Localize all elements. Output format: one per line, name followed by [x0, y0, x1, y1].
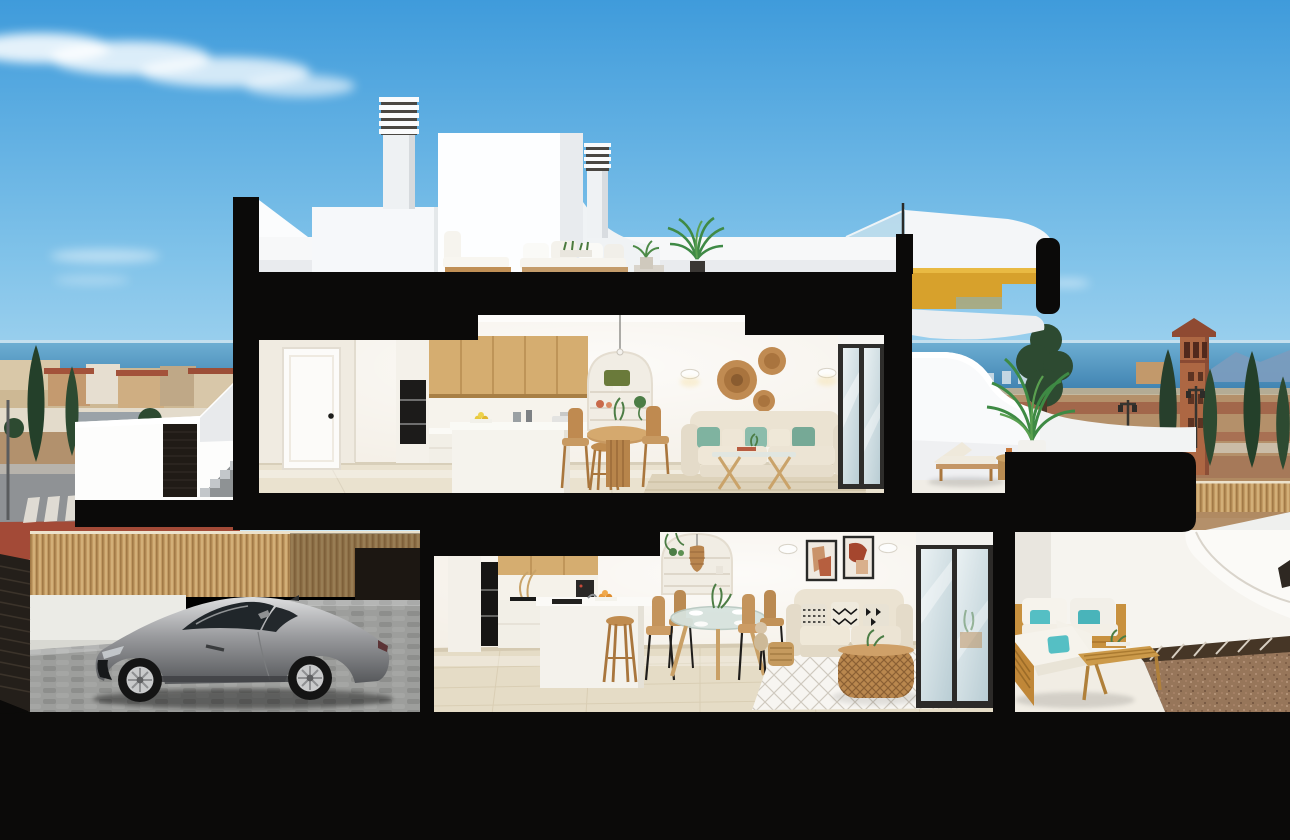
ground-sliding-door [916, 530, 993, 708]
outdoor-sofa [520, 241, 628, 273]
teal-pillow [1047, 635, 1070, 654]
blind-box [916, 530, 993, 545]
neighbour-stair-structure [905, 210, 1060, 339]
render-canvas [0, 0, 1290, 840]
ground-terrace [1006, 512, 1290, 714]
table-pedestal [606, 440, 630, 487]
island-sink [552, 599, 582, 604]
ground-right-cut-bar [993, 528, 1015, 714]
teal-pillow [792, 427, 815, 448]
door-handle [328, 413, 334, 419]
appliance-stack [481, 562, 498, 646]
rear-wheel [288, 656, 332, 700]
glass-top [712, 452, 796, 457]
upper-wood-cabinets [429, 336, 588, 398]
upper-wood-cabinets [498, 553, 598, 575]
chaise-cushion [443, 257, 509, 268]
roof-volume-low [312, 207, 440, 273]
front-wheel [118, 658, 162, 702]
planter-box [560, 250, 592, 257]
wall-sconce [779, 544, 797, 553]
wall-sconce [879, 543, 897, 552]
foundation-slab-cut [0, 712, 1290, 840]
pedestrian-gate [163, 424, 197, 497]
chimney [379, 97, 419, 209]
patterned-pillow [863, 604, 889, 628]
left-cut-bar [233, 197, 259, 527]
niche-vase [716, 566, 723, 574]
teal-pillow [697, 427, 720, 448]
plant-pot [640, 257, 653, 269]
niche-plant [634, 396, 646, 408]
table-books [737, 447, 756, 451]
tall-cabinet [448, 556, 481, 652]
niche-vase [596, 400, 604, 408]
chimney [584, 143, 611, 238]
reflected-console [960, 632, 982, 648]
niche-lamp [604, 370, 630, 386]
ground-left-cut-bar [420, 548, 434, 714]
pendant-lamp [617, 349, 623, 355]
ground-niche [662, 533, 732, 594]
cream-pillow [722, 429, 743, 448]
built-in-oven [400, 380, 426, 444]
seat-cushion [800, 626, 850, 646]
patterned-pillow [801, 604, 827, 628]
interior-door [283, 348, 340, 469]
upper-floor [259, 313, 884, 506]
rooftop-cut-column [896, 234, 913, 274]
cream-pillow [769, 429, 790, 448]
upper-right-cut-bar [884, 272, 912, 530]
bench-tray [1106, 642, 1130, 646]
gravel-bed [1144, 652, 1290, 714]
stair-cut-bar [1036, 238, 1060, 314]
upper-sliding-door [838, 331, 884, 489]
patterned-pillow [831, 602, 859, 628]
lounger-cushion [940, 456, 996, 465]
upper-sofa [681, 411, 852, 477]
entry-gate-left [0, 554, 30, 712]
